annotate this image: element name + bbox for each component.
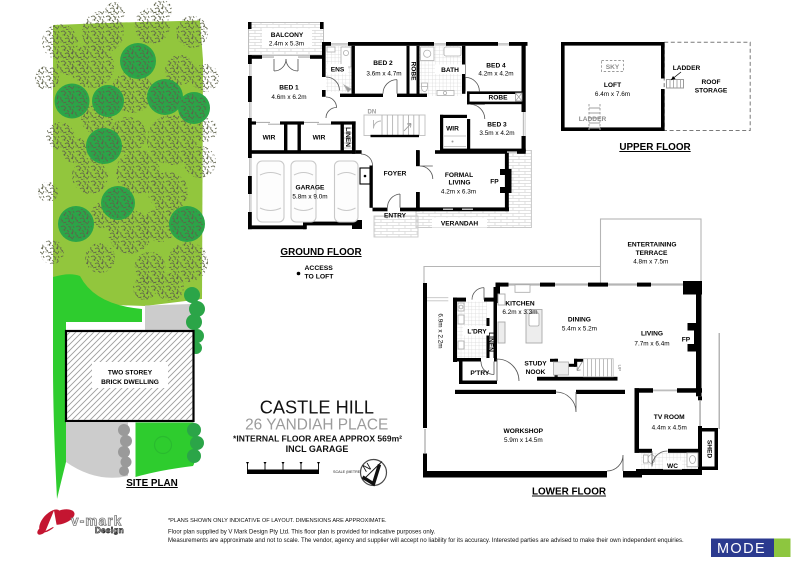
svg-text:FORMAL: FORMAL — [445, 172, 473, 179]
svg-text:DINING: DINING — [568, 317, 591, 324]
svg-text:Floor plan supplied by V Mark: Floor plan supplied by V Mark Design Pty… — [168, 530, 436, 536]
svg-text:5.8m x 9.0m: 5.8m x 9.0m — [292, 194, 327, 201]
svg-text:ENTRY: ENTRY — [384, 213, 407, 220]
svg-text:6.9m x 2.2m: 6.9m x 2.2m — [437, 313, 444, 348]
svg-text:FOYER: FOYER — [384, 171, 407, 178]
svg-text:Measurements are approximate a: Measurements are approximate and not to … — [168, 538, 684, 544]
svg-text:WIR: WIR — [313, 135, 326, 142]
svg-text:FP: FP — [682, 337, 691, 344]
svg-text:26 YANDIAH PLACE: 26 YANDIAH PLACE — [245, 417, 388, 434]
svg-text:*INTERNAL FLOOR AREA APPROX 56: *INTERNAL FLOOR AREA APPROX 569m² — [233, 434, 402, 444]
svg-text:DN: DN — [368, 110, 377, 116]
svg-text:4.2m x 6.3m: 4.2m x 6.3m — [441, 189, 476, 196]
svg-text:SHED: SHED — [706, 440, 713, 459]
svg-text:5.4m x 5.2m: 5.4m x 5.2m — [562, 326, 597, 333]
svg-text:WC: WC — [667, 463, 678, 470]
svg-text:INCL GARAGE: INCL GARAGE — [286, 444, 349, 454]
svg-text:4.2m x 4.2m: 4.2m x 4.2m — [478, 71, 513, 78]
svg-text:GARAGE: GARAGE — [296, 185, 326, 192]
svg-text:LIVING: LIVING — [449, 180, 471, 187]
svg-text:LOWER FLOOR: LOWER FLOOR — [532, 487, 606, 498]
svg-text:UP: UP — [616, 365, 622, 372]
svg-text:6.2m x 3.3m: 6.2m x 3.3m — [502, 309, 537, 316]
svg-text:Design: Design — [95, 526, 124, 535]
svg-text:L'DRY: L'DRY — [467, 329, 487, 336]
svg-text:TWO STOREY: TWO STOREY — [108, 370, 153, 377]
svg-text:ROBE: ROBE — [488, 95, 508, 102]
svg-text:4.8m x 7.5m: 4.8m x 7.5m — [633, 259, 668, 266]
svg-text:LOFT: LOFT — [604, 82, 621, 89]
svg-text:LINEN: LINEN — [344, 127, 351, 147]
svg-text:3.5m x 4.2m: 3.5m x 4.2m — [479, 130, 514, 137]
svg-text:CASTLE HILL: CASTLE HILL — [260, 398, 374, 418]
svg-text:BED 1: BED 1 — [279, 85, 299, 92]
svg-text:STORAGE: STORAGE — [695, 88, 728, 95]
svg-text:LINEN: LINEN — [487, 332, 494, 352]
svg-text:BALCONY: BALCONY — [271, 32, 304, 39]
svg-text:ENTERTAINING: ENTERTAINING — [628, 242, 677, 249]
svg-text:ENS: ENS — [331, 67, 345, 74]
svg-text:WORKSHOP: WORKSHOP — [504, 428, 544, 435]
svg-text:7.7m x 6.4m: 7.7m x 6.4m — [634, 341, 669, 348]
svg-text:LADDER: LADDER — [579, 116, 607, 123]
svg-text:SKY: SKY — [606, 64, 620, 71]
svg-text:VERANDAH: VERANDAH — [441, 221, 479, 228]
svg-text:WIR: WIR — [446, 126, 459, 133]
svg-text:TERRACE: TERRACE — [636, 250, 668, 257]
svg-text:LIVING: LIVING — [641, 331, 663, 338]
svg-text:UPPER FLOOR: UPPER FLOOR — [619, 142, 690, 153]
svg-text:5.9m x 14.5m: 5.9m x 14.5m — [504, 437, 543, 444]
svg-text:6.4m x 7.6m: 6.4m x 7.6m — [595, 91, 630, 98]
svg-text:4.6m x 6.2m: 4.6m x 6.2m — [271, 94, 306, 101]
svg-text:BED 3: BED 3 — [487, 122, 507, 129]
svg-text:ACCESS: ACCESS — [305, 265, 334, 272]
svg-text:4.4m x 4.5m: 4.4m x 4.5m — [652, 424, 687, 431]
svg-text:BED 2: BED 2 — [373, 60, 393, 67]
svg-text:P'TRY: P'TRY — [470, 370, 490, 377]
svg-text:*PLANS SHOWN ONLY INDICATIVE O: *PLANS SHOWN ONLY INDICATIVE OF LAYOUT. … — [168, 518, 387, 524]
svg-text:BED 4: BED 4 — [486, 63, 506, 70]
svg-text:KITCHEN: KITCHEN — [505, 301, 535, 308]
svg-text:FP: FP — [490, 179, 499, 186]
svg-text:BRICK DWELLING: BRICK DWELLING — [101, 379, 159, 386]
svg-text:LADDER: LADDER — [673, 65, 701, 72]
svg-text:BATH: BATH — [441, 67, 459, 74]
svg-text:NOOK: NOOK — [526, 369, 546, 376]
svg-text:TV ROOM: TV ROOM — [654, 414, 685, 421]
svg-text:ROOF: ROOF — [701, 79, 720, 86]
svg-text:MODE: MODE — [717, 541, 766, 557]
svg-text:SCALE (METRES): SCALE (METRES) — [333, 470, 364, 474]
svg-text:2.4m x 5.3m: 2.4m x 5.3m — [269, 41, 304, 48]
svg-text:ROBE: ROBE — [410, 61, 417, 81]
svg-text:STUDY: STUDY — [524, 361, 547, 368]
svg-text:GROUND FLOOR: GROUND FLOOR — [280, 247, 361, 258]
svg-text:SITE PLAN: SITE PLAN — [126, 478, 178, 489]
svg-text:WIR: WIR — [263, 135, 276, 142]
svg-text:3.6m x 4.7m: 3.6m x 4.7m — [366, 71, 401, 78]
svg-text:TO LOFT: TO LOFT — [305, 274, 335, 281]
